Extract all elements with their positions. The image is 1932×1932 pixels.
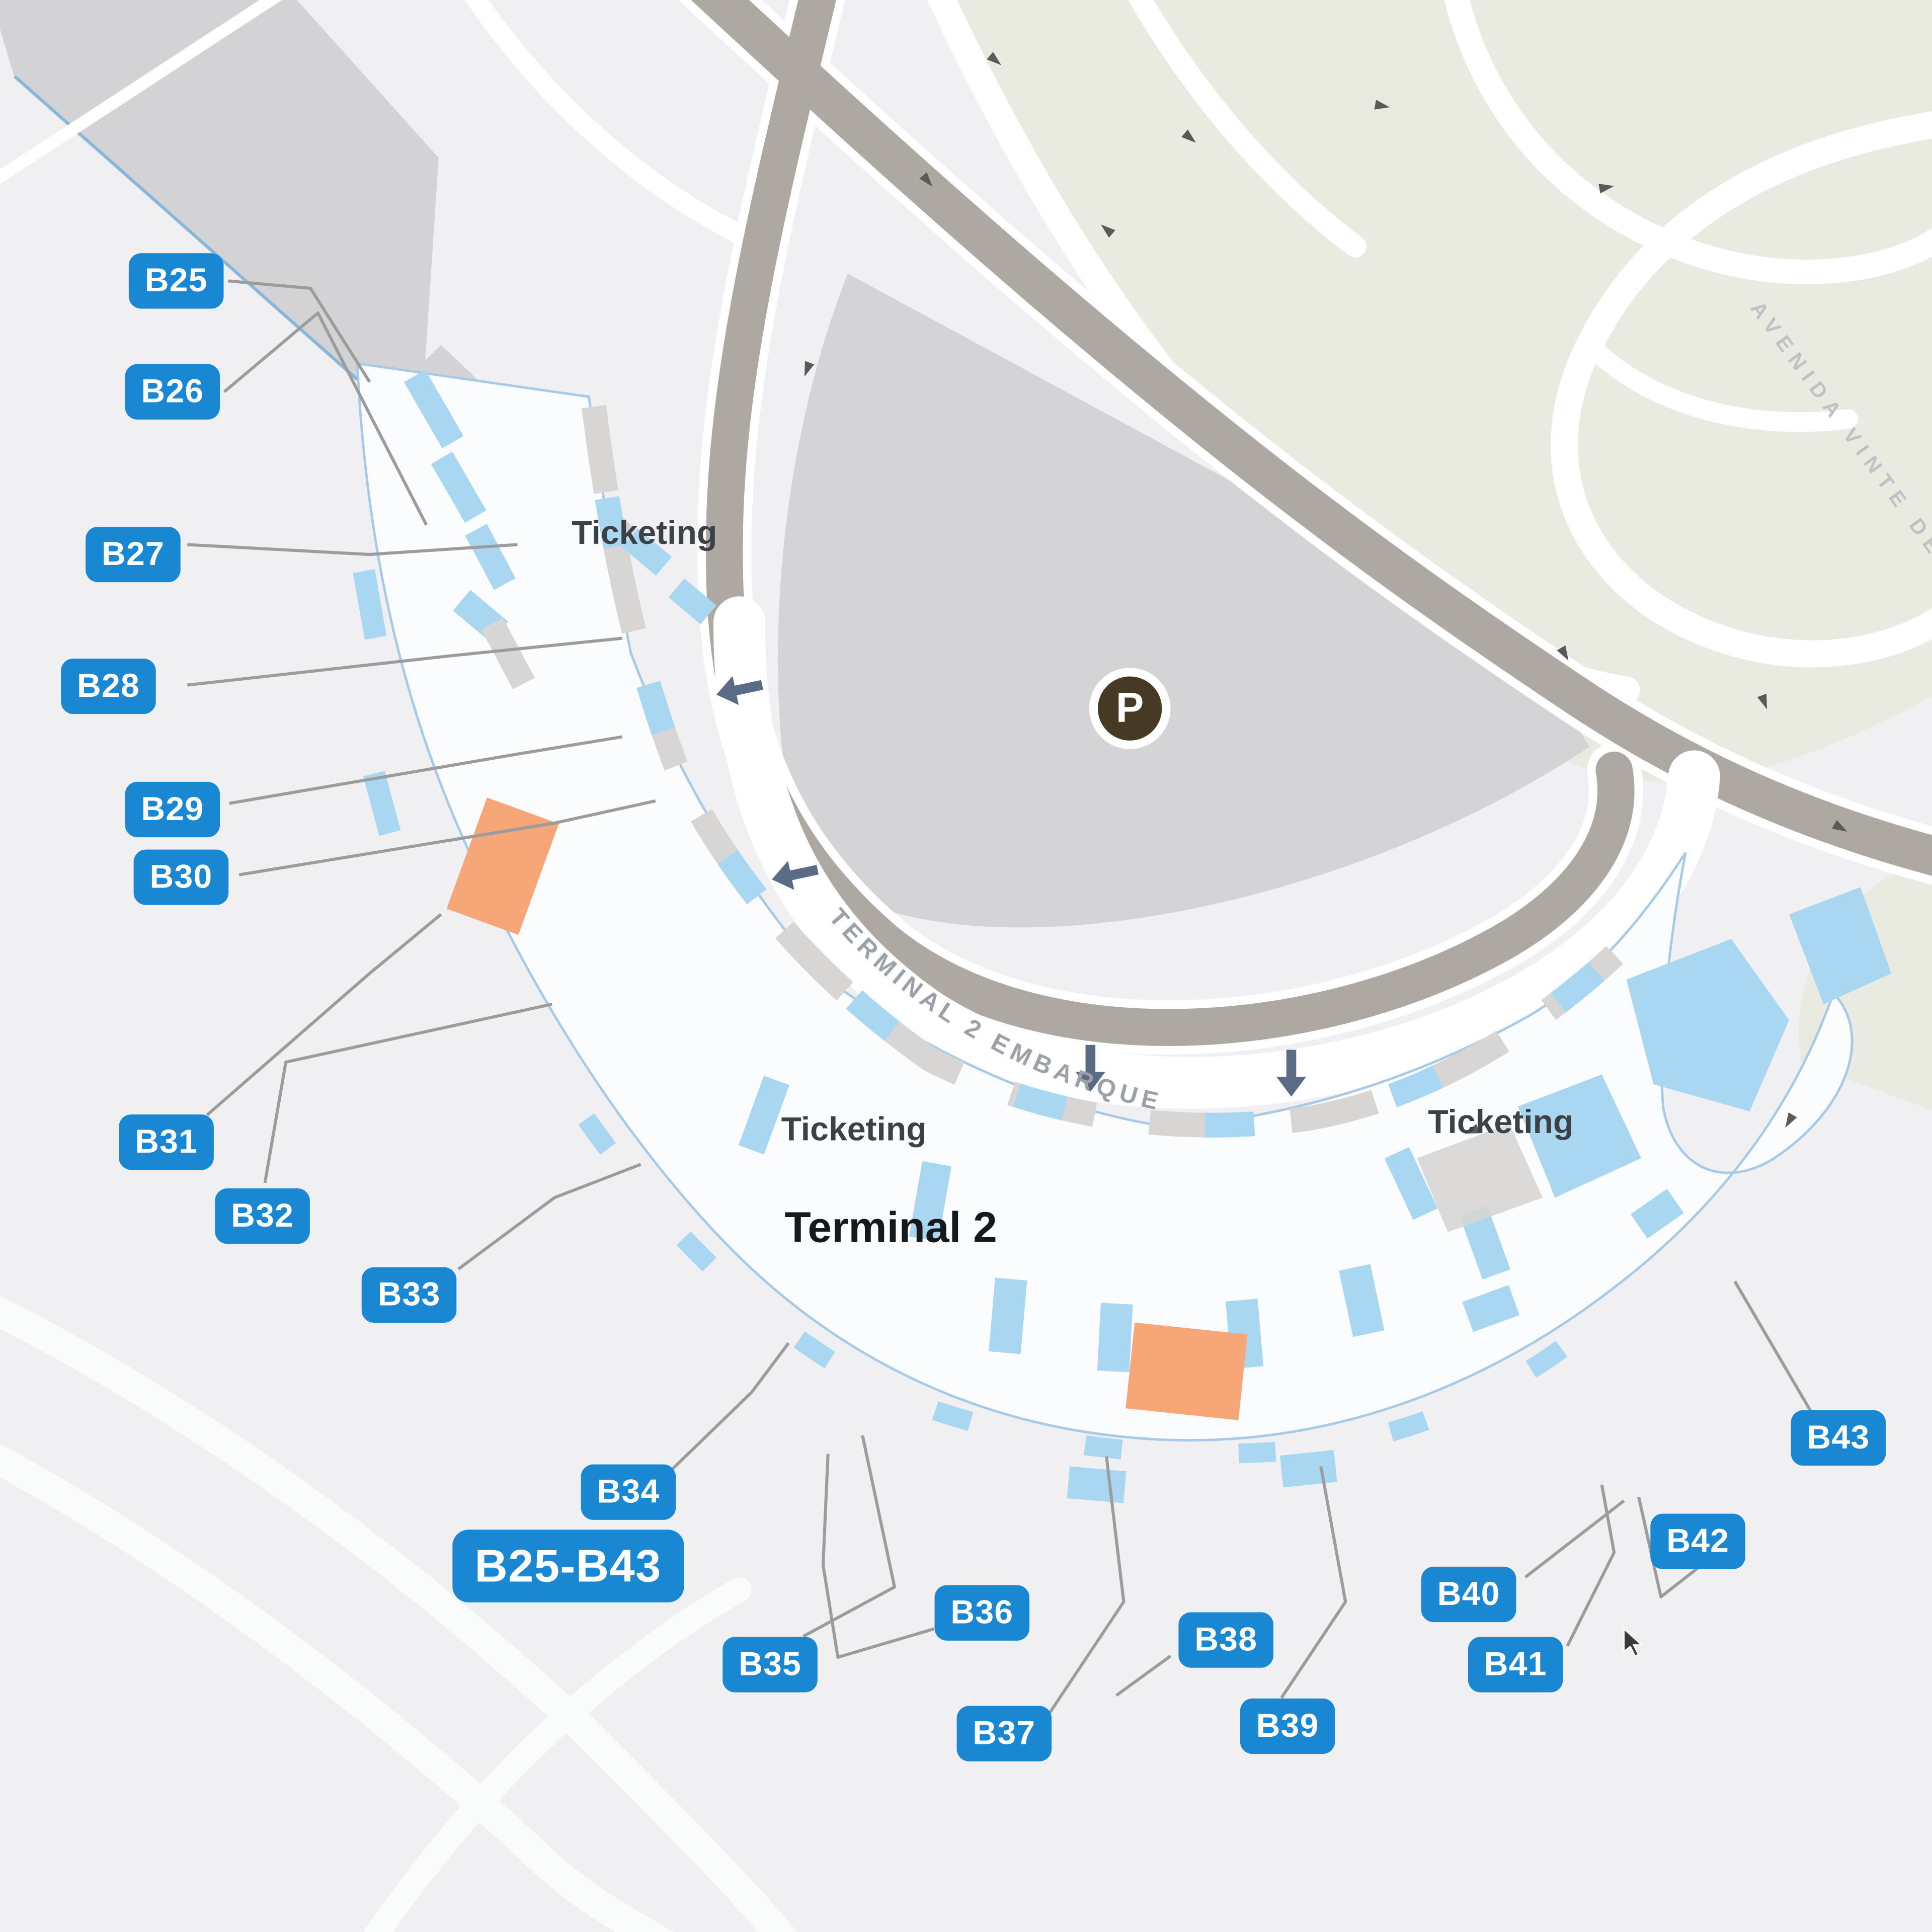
gate-pill-b30[interactable]: B30 [134, 850, 229, 905]
gate-pill-b38[interactable]: B38 [1178, 1612, 1273, 1667]
ticketing-label-east: Ticketing [1428, 1103, 1573, 1142]
gate-pill-b28[interactable]: B28 [61, 659, 156, 714]
gate-pill-b36[interactable]: B36 [935, 1585, 1030, 1641]
parking-marker[interactable]: P [1089, 668, 1171, 749]
gate-pill-b42[interactable]: B42 [1650, 1514, 1745, 1569]
ticketing-label-middle: Ticketing [781, 1111, 927, 1149]
terminal-title: Terminal 2 [784, 1204, 997, 1253]
gate-pill-b40[interactable]: B40 [1421, 1567, 1516, 1622]
ticketing-label-upper: Ticketing [572, 514, 717, 552]
gate-pill-b25[interactable]: B25 [129, 253, 224, 308]
parking-icon: P [1116, 684, 1144, 733]
airport-map: TERMINAL 2 EMBARQUE AVENIDA VINTE DE Tic… [0, 0, 1932, 1932]
gate-pill-b32[interactable]: B32 [215, 1188, 310, 1244]
gate-pill-b43[interactable]: B43 [1791, 1410, 1886, 1466]
gate-pill-b26[interactable]: B26 [125, 364, 220, 420]
gate-range-pill[interactable]: B25-B43 [452, 1530, 683, 1602]
gate-pill-b37[interactable]: B37 [957, 1706, 1052, 1761]
gate-pill-b39[interactable]: B39 [1240, 1699, 1335, 1754]
label-overlay: Ticketing Ticketing Ticketing Terminal 2… [0, 0, 1932, 1932]
gate-pill-b34[interactable]: B34 [581, 1465, 676, 1520]
gate-pill-b31[interactable]: B31 [119, 1114, 214, 1170]
gate-pill-b27[interactable]: B27 [86, 527, 181, 582]
gate-pill-b29[interactable]: B29 [125, 782, 220, 837]
gate-pill-b41[interactable]: B41 [1468, 1637, 1563, 1692]
gate-pill-b35[interactable]: B35 [722, 1637, 818, 1692]
gate-pill-b33[interactable]: B33 [362, 1267, 457, 1323]
